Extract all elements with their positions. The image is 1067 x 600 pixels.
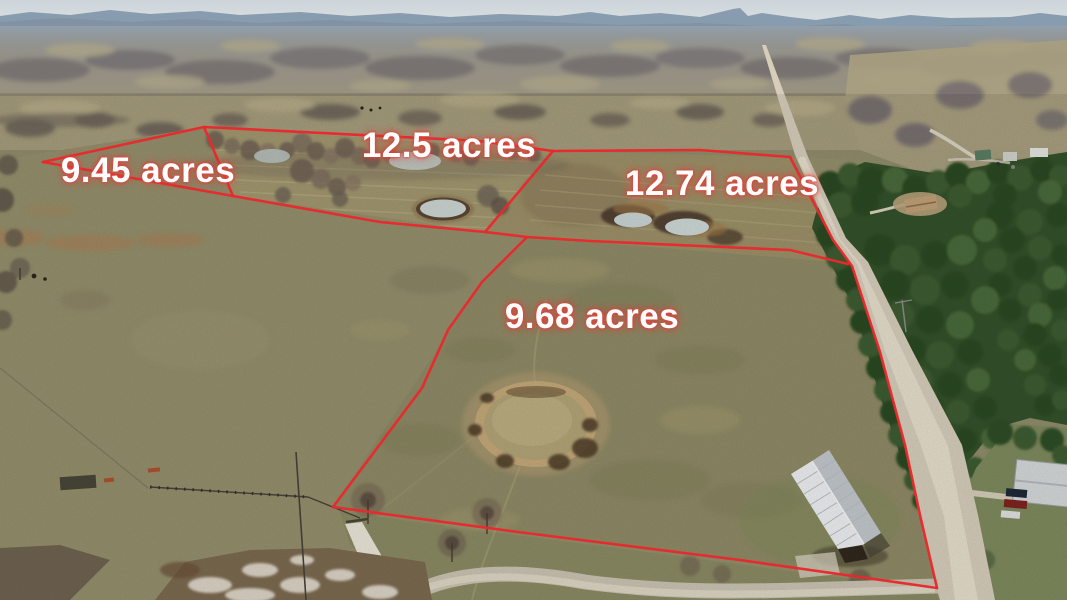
acreage-label-lot-d: 9.68 acres: [505, 297, 679, 337]
acreage-label-lot-b: 12.5 acres: [362, 126, 536, 166]
acreage-label-lot-a: 9.45 acres: [61, 151, 235, 191]
acreage-label-lot-c: 12.74 acres: [625, 164, 819, 204]
grain-texture: [0, 140, 1067, 600]
aerial-parcel-photo: 9.45 acres 12.5 acres 12.74 acres 9.68 a…: [0, 0, 1067, 600]
